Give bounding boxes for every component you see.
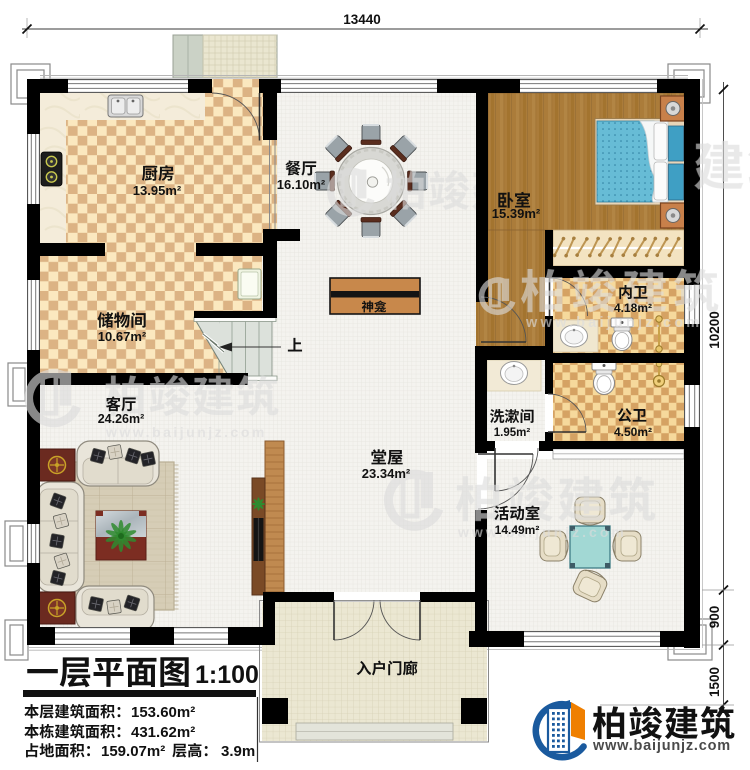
svg-text:24.26m²: 24.26m² [98, 412, 145, 426]
svg-text:www.baijunjz.com: www.baijunjz.com [105, 424, 267, 440]
svg-text:153.60m²: 153.60m² [131, 704, 195, 721]
svg-text:1500: 1500 [707, 667, 722, 697]
svg-text:10200: 10200 [707, 311, 722, 349]
svg-text:16.10m²: 16.10m² [277, 177, 326, 192]
svg-text:www.baijunjz.com: www.baijunjz.com [592, 738, 731, 754]
svg-text:13440: 13440 [343, 12, 381, 27]
svg-text:3.9m: 3.9m [221, 743, 255, 760]
svg-text:www.baijunjz.com: www.baijunjz.com [525, 315, 702, 331]
svg-text:4.50m²: 4.50m² [614, 425, 652, 439]
svg-text:14.49m²: 14.49m² [495, 523, 540, 537]
svg-text:431.62m²: 431.62m² [131, 724, 195, 741]
svg-text:23.34m²: 23.34m² [362, 466, 411, 481]
svg-text:1.95m²: 1.95m² [494, 427, 531, 439]
svg-text:1:100: 1:100 [195, 661, 259, 689]
svg-text:900: 900 [707, 606, 722, 629]
svg-text:www.baijunjz.com: www.baijunjz.com [457, 524, 627, 540]
svg-text:13.95m²: 13.95m² [133, 183, 182, 198]
svg-text:4.18m²: 4.18m² [614, 301, 652, 315]
svg-text:159.07m²: 159.07m² [101, 743, 165, 760]
svg-text:10.67m²: 10.67m² [98, 329, 147, 344]
svg-text:15.39m²: 15.39m² [492, 206, 541, 221]
